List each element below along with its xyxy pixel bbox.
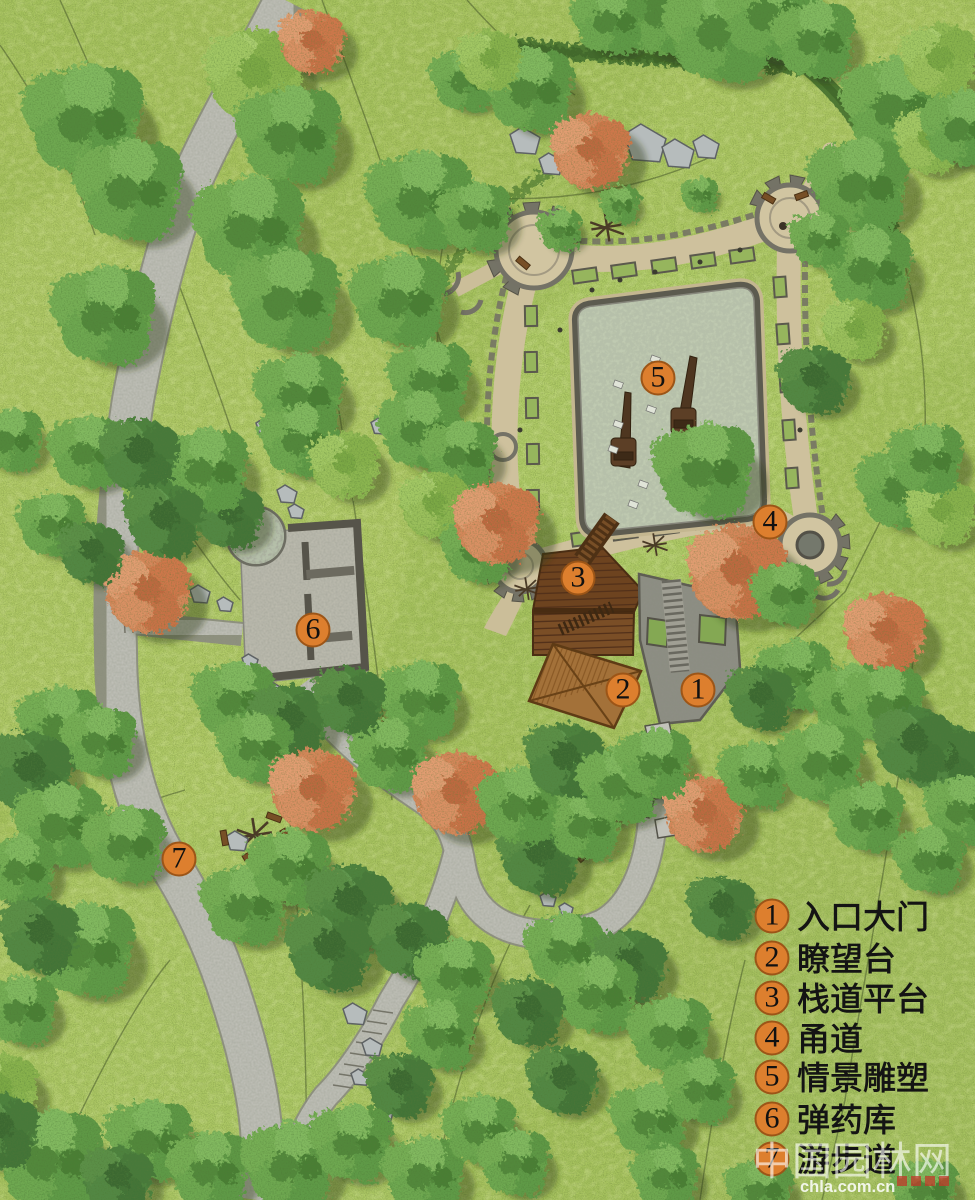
svg-text:4: 4 <box>763 505 778 538</box>
svg-text:chla.com.cn: chla.com.cn <box>800 1178 895 1196</box>
svg-text:5: 5 <box>765 1060 780 1093</box>
svg-text:7: 7 <box>172 842 187 875</box>
svg-text:2: 2 <box>616 673 631 706</box>
svg-text:6: 6 <box>306 613 321 646</box>
svg-text:2: 2 <box>765 941 780 974</box>
svg-text:1: 1 <box>765 899 780 932</box>
svg-text:5: 5 <box>651 361 666 394</box>
svg-text:6: 6 <box>765 1102 780 1135</box>
svg-text:3: 3 <box>765 981 780 1014</box>
svg-text:1: 1 <box>691 673 706 706</box>
svg-text:3: 3 <box>571 561 586 594</box>
svg-text:4: 4 <box>765 1021 780 1054</box>
